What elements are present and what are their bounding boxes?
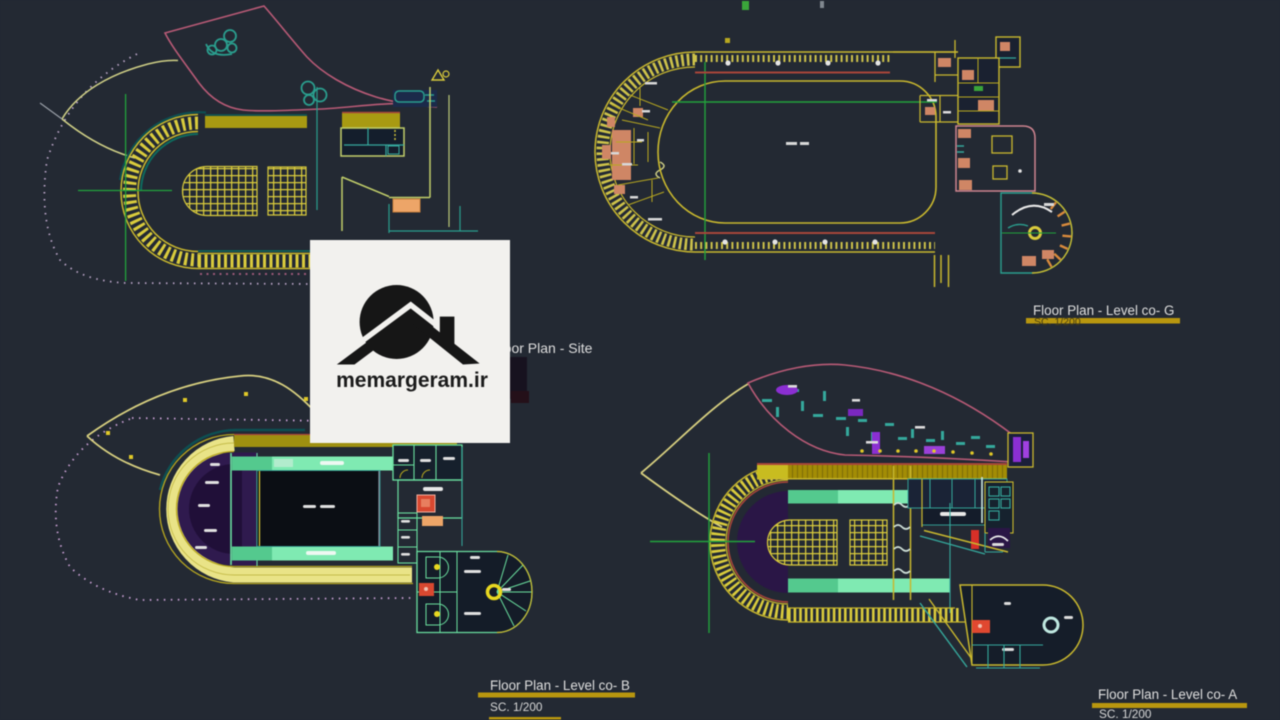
svg-text:Floor Plan - Level co- B: Floor Plan - Level co- B [490, 678, 630, 693]
svg-text:memargeram.ir: memargeram.ir [336, 369, 488, 392]
svg-text:SC. 1/200: SC. 1/200 [1034, 316, 1081, 328]
svg-text:Floor Plan - Level co- A: Floor Plan - Level co- A [1098, 687, 1237, 702]
svg-text:SC. 1/200: SC. 1/200 [1099, 707, 1152, 720]
svg-text:SC. 1/200: SC. 1/200 [490, 700, 543, 714]
